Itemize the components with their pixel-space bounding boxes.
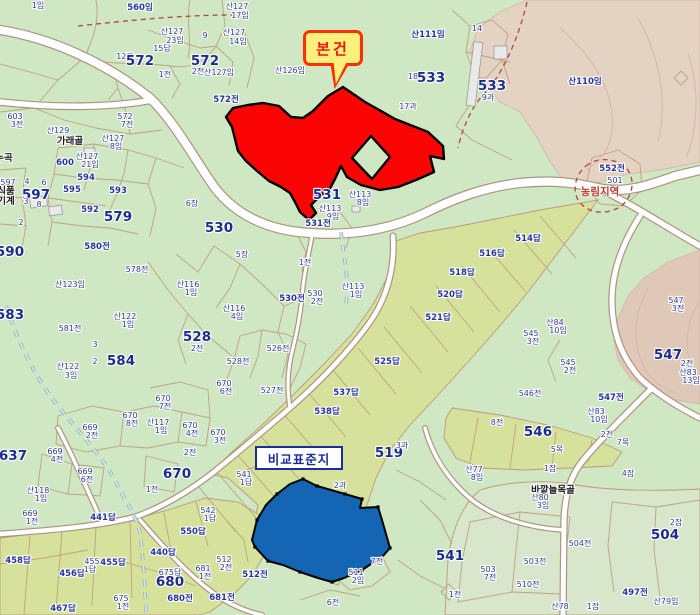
parcel-label: 584 xyxy=(107,353,135,369)
parcel-label: 441답 xyxy=(90,512,116,523)
parcel-label: 1임 xyxy=(155,426,167,435)
parcel-label: 3전 xyxy=(11,119,23,129)
parcel-line xyxy=(548,340,560,382)
parcel-label: 681전 xyxy=(209,592,235,603)
parcel-label: 8 xyxy=(36,200,41,209)
parcel-line xyxy=(250,330,262,378)
parcel-line xyxy=(176,246,214,272)
parcel-label: 3 xyxy=(23,197,28,206)
parcel-label: 산122 xyxy=(57,361,80,371)
parcel-label: 3전 xyxy=(214,435,226,445)
parcel-label: 1답 xyxy=(240,477,253,487)
parcel-label: 528전 xyxy=(227,356,250,366)
parcel-line xyxy=(0,58,84,80)
parcel-label: 2임 xyxy=(352,576,364,585)
zone-boundary-line xyxy=(78,15,232,26)
parcel-label: 14 xyxy=(472,24,482,33)
parcel-label: 2전 xyxy=(184,447,196,457)
polygon-vertex-dot xyxy=(255,518,258,521)
parcel-label: 3전 xyxy=(672,303,684,313)
polygon-vertex-dot xyxy=(343,492,346,495)
polygon-vertex-dot xyxy=(376,505,379,508)
polygon-vertex-dot xyxy=(253,545,256,548)
cadastral-map: 1임560임산12717임산12723임9산12714임15답12과572572… xyxy=(0,0,700,615)
parcel-label: 산110임 xyxy=(568,76,601,87)
parcel-label: 15답 xyxy=(153,43,171,53)
parcel-label: 680전 xyxy=(167,593,193,604)
parcel-label: 440답 xyxy=(150,547,176,558)
parcel-label: 8임 xyxy=(110,142,122,151)
parcel-label: 600 xyxy=(56,158,74,168)
parcel-line xyxy=(398,560,444,588)
parcel-label: 531전 xyxy=(305,218,331,229)
parcel-label: 3임 xyxy=(65,371,77,380)
parcel-line xyxy=(108,150,128,214)
parcel-label: 1전 xyxy=(146,484,158,494)
parcel-label: 산127임 xyxy=(204,67,234,77)
parcel-label: 1답 xyxy=(84,564,97,574)
polygon-vertex-dot xyxy=(315,484,318,487)
parcel-label: 1임 xyxy=(32,1,44,10)
parcel-label: 546전 xyxy=(519,388,542,398)
parcel-label: 504전 xyxy=(569,538,592,548)
polygon-vertex-dot xyxy=(298,570,301,573)
parcel-label: 7전 xyxy=(159,401,171,411)
parcel-line xyxy=(148,158,156,184)
parcel-label: 1잡 xyxy=(544,463,557,473)
parcel-label: 456답 xyxy=(59,568,85,579)
parcel-line xyxy=(188,0,190,58)
parcel-label: 2과 xyxy=(334,481,347,490)
parcel-label: 17과 xyxy=(399,102,417,111)
parcel-label: 546 xyxy=(524,424,552,440)
stream-center xyxy=(341,232,347,304)
parcel-label: 3임 xyxy=(537,501,549,510)
parcel-label: 1임 xyxy=(185,288,197,297)
subject-callout-label: 본건 xyxy=(316,38,350,59)
parcel-label: 533 xyxy=(417,70,445,86)
parcel-label: 528 xyxy=(183,329,211,345)
polygon-vertex-dot xyxy=(301,477,304,480)
parcel-label: 1전 xyxy=(117,601,129,611)
parcel-label: 1전 xyxy=(26,516,38,526)
parcel-line xyxy=(216,264,240,308)
parcel-label: 8임 xyxy=(471,473,483,482)
parcel-label: 21임 xyxy=(81,160,99,169)
parcel-label: 467답 xyxy=(50,603,76,614)
parcel-label: 578전 xyxy=(126,264,149,274)
parcel-label: 3전 xyxy=(527,336,539,346)
parcel-label: 1전 xyxy=(449,589,461,599)
parcel-label: 3과 xyxy=(396,441,409,450)
parcel-label: 10임 xyxy=(590,415,608,424)
parcel-label: 583 xyxy=(0,307,24,323)
parcel-label: 501 xyxy=(607,176,622,185)
parcel-label: 593 xyxy=(109,186,127,196)
parcel-line xyxy=(396,470,446,500)
parcel-label: 550답 xyxy=(180,526,206,537)
parcel-label: 581전 xyxy=(59,323,82,333)
parcel-label: 7목 xyxy=(617,438,629,447)
cadastral-map-svg: 1임560임산12717임산12723임9산12714임15답12과572572… xyxy=(0,0,700,615)
parcel-label: 14임 xyxy=(229,37,247,46)
parcel-label: 10임 xyxy=(549,326,567,335)
parcel-label: 6 xyxy=(41,178,46,187)
parcel-label: 531 xyxy=(313,187,341,203)
parcel-label: 1임 xyxy=(350,290,362,299)
parcel-label: 1답 xyxy=(204,513,217,523)
parcel-label: 579 xyxy=(104,209,132,225)
parcel-label: 2전 xyxy=(191,343,203,353)
parcel-label: 13임 xyxy=(682,376,700,385)
parcel-label: 8임 xyxy=(357,198,369,207)
parcel-label: 514답 xyxy=(515,233,541,244)
parcel-label: 675답 xyxy=(159,567,182,577)
parcel-label: 1전 xyxy=(299,257,311,267)
parcel-label: 552전 xyxy=(599,163,625,174)
parcel-label: 2잡 xyxy=(670,517,683,527)
parcel-label: 527전 xyxy=(261,385,284,395)
parcel-label: 5목 xyxy=(551,445,563,454)
parcel-label: 1전 xyxy=(199,571,211,581)
parcel-label: 산127 xyxy=(223,27,246,37)
parcel-label: 산111임 xyxy=(411,29,444,40)
parcel-label: 497전 xyxy=(622,587,648,598)
comparison-standard-label: 비교표준지 xyxy=(255,446,343,470)
parcel-label: 2 xyxy=(18,218,23,227)
parcel-label: 504 xyxy=(651,527,679,543)
parcel-line xyxy=(170,66,180,98)
parcel-label: 9과 xyxy=(482,93,495,102)
parcel-label: 533 xyxy=(478,78,506,94)
parcel-label: 8전 xyxy=(491,417,503,427)
polygon-vertex-dot xyxy=(275,492,278,495)
parcel-label: 9 xyxy=(202,31,207,40)
parcel-label: 6전 xyxy=(81,474,93,484)
parcel-label: 637 xyxy=(0,448,27,464)
parcel-label: 산127 xyxy=(161,26,184,36)
parcel-label: 530 xyxy=(205,220,233,236)
parcel-label: 525답 xyxy=(374,356,400,367)
parcel-label: 530전 xyxy=(279,293,305,304)
parcel-label: 503전 xyxy=(524,556,547,566)
parcel-label: 4잡 xyxy=(622,468,635,478)
parcel-label: 458답 xyxy=(5,555,31,566)
parcel-label: 572전 xyxy=(213,94,239,105)
parcel-label: 3 xyxy=(92,340,97,349)
parcel-label: 5장 xyxy=(236,249,249,259)
polygon-vertex-dot xyxy=(388,546,391,549)
parcel-label: 2전 xyxy=(86,430,98,440)
parcel-label: 산123임 xyxy=(55,279,85,289)
parcel-label: 누곡 xyxy=(0,153,13,164)
parcel-label: 518답 xyxy=(449,267,475,278)
parcel-label: 4 xyxy=(24,177,29,186)
parcel-label: 590 xyxy=(0,244,24,260)
parcel-label: 572 xyxy=(126,53,154,69)
parcel-label: 592 xyxy=(81,205,99,215)
parcel-label: 547전 xyxy=(598,392,624,403)
region-bottom-right-field xyxy=(445,482,700,615)
parcel-label: 537답 xyxy=(333,387,359,398)
parcel-label: 538답 xyxy=(314,406,340,417)
parcel-label: 2전 xyxy=(564,365,576,375)
parcel-label: 가래골 xyxy=(57,135,83,147)
parcel-label: 6전 xyxy=(327,597,339,607)
parcel-label: 526전 xyxy=(267,343,290,353)
parcel-line xyxy=(54,174,148,184)
parcel-label: 520답 xyxy=(437,289,463,300)
polygon-vertex-dot xyxy=(360,497,363,500)
parcel-label: 1임 xyxy=(122,320,134,329)
parcel-label: 산126임 xyxy=(275,65,305,75)
parcel-label: 2전 xyxy=(192,66,204,76)
parcel-label: 2전 xyxy=(601,429,613,439)
parcel-label: 670 xyxy=(163,466,191,482)
parcel-label: 547 xyxy=(654,347,682,363)
parcel-label: 기계 xyxy=(0,195,15,207)
polygon-vertex-dot xyxy=(330,580,333,583)
parcel-label: 17임 xyxy=(231,11,249,20)
parcel-label: 6전 xyxy=(220,386,232,396)
parcel-label: 455답 xyxy=(100,557,126,568)
parcel-label: 산129 xyxy=(47,125,70,135)
parcel-label: 2전 xyxy=(311,296,323,306)
parcel-label: 580전 xyxy=(84,241,110,252)
parcel-label: 2 xyxy=(92,357,97,366)
parcel-label: 4전 xyxy=(51,454,63,464)
parcel-line xyxy=(148,184,156,236)
parcel-label: 2전 xyxy=(681,358,693,368)
parcel-label: 2전 xyxy=(220,562,232,572)
parcel-line xyxy=(216,0,225,46)
parcel-label: 7전 xyxy=(121,119,133,129)
parcel-label: 7전 xyxy=(484,572,496,582)
parcel-line xyxy=(84,0,97,58)
building xyxy=(494,46,507,59)
parcel-line xyxy=(420,500,452,544)
parcel-label: 1전 xyxy=(159,69,171,79)
parcel-label: 521답 xyxy=(425,312,451,323)
parcel-label: 560임 xyxy=(127,2,153,13)
building xyxy=(48,205,62,216)
parcel-label: 512전 xyxy=(242,569,268,580)
parcel-label: 산79임 xyxy=(654,596,679,606)
parcel-label: 8전 xyxy=(126,418,138,428)
parcel-label: 516답 xyxy=(479,248,505,259)
polygon-vertex-dot xyxy=(266,559,269,562)
parcel-label: 594 xyxy=(77,173,95,183)
parcel-label: 595 xyxy=(63,185,81,195)
parcel-label: 농림지역 xyxy=(581,185,620,198)
parcel-label: 1임 xyxy=(35,494,47,503)
parcel-label: 4임 xyxy=(231,312,243,321)
parcel-label: 1잡 xyxy=(587,601,600,611)
parcel-label: 7전 xyxy=(371,556,383,566)
parcel-label: 6장 xyxy=(186,198,199,208)
parcel-label: 510전 xyxy=(517,579,540,589)
comparison-standard-label-text: 비교표준지 xyxy=(268,449,331,468)
parcel-label: 4전 xyxy=(186,428,198,438)
parcel-label: 541 xyxy=(436,548,464,564)
parcel-line xyxy=(456,126,512,160)
stream xyxy=(341,232,347,304)
parcel-label: 산78 xyxy=(551,601,569,611)
parcel-label: 산127 xyxy=(226,1,249,11)
